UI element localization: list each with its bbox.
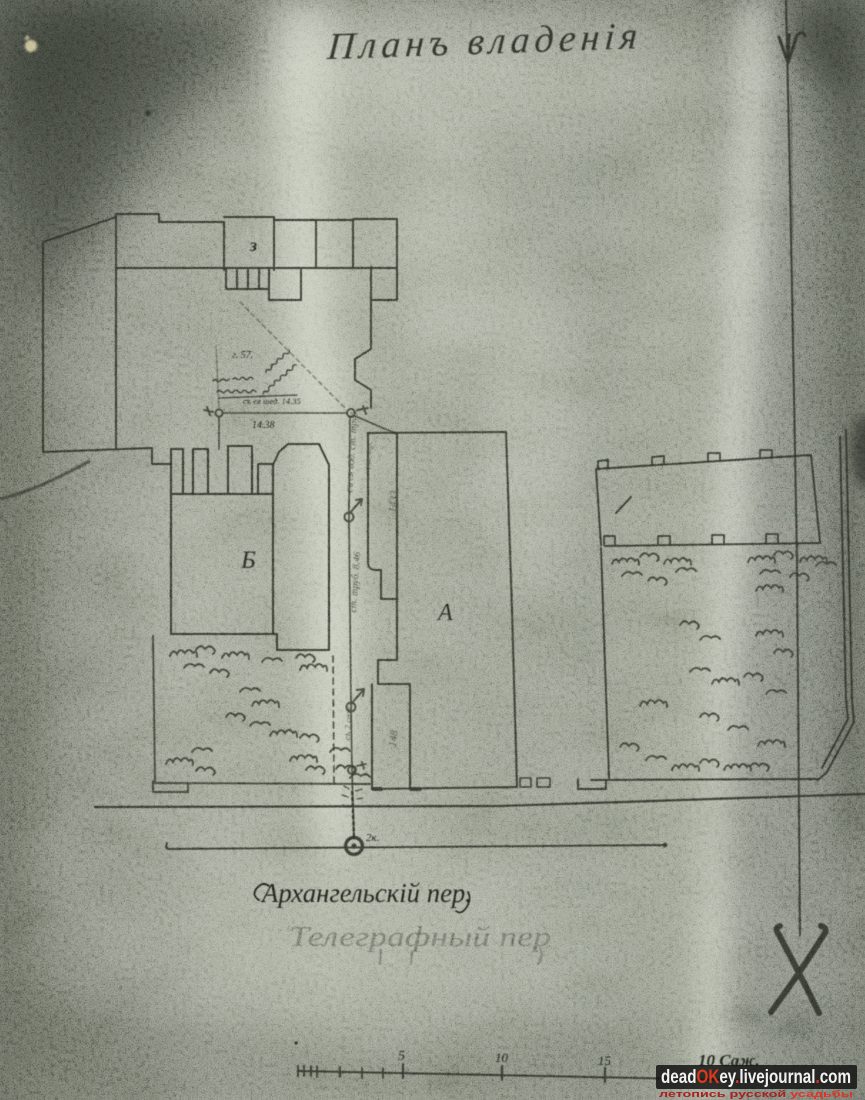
svg-text:летопись русской усадьбы: летопись русской усадьбы xyxy=(659,1089,853,1100)
svg-text:deadOKey.livejournal.com: deadOKey.livejournal.com xyxy=(661,1067,851,1088)
